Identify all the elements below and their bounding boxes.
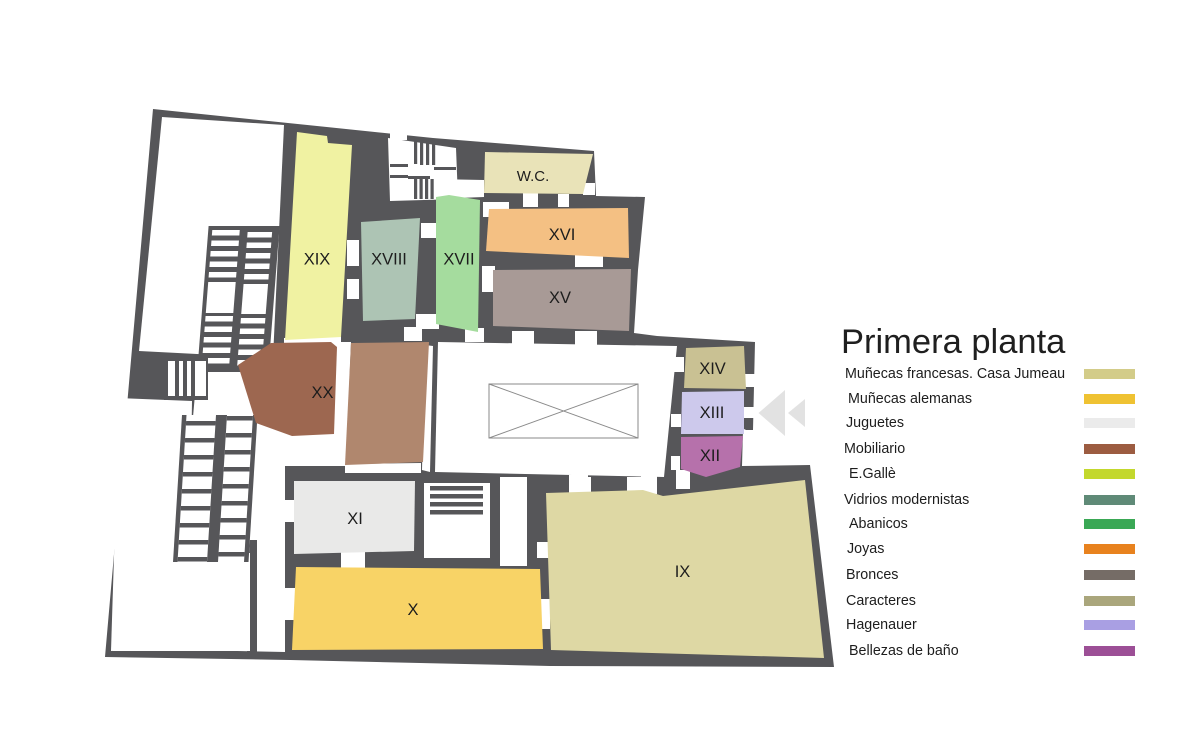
svg-text:XVII: XVII [443, 251, 474, 269]
svg-text:XIX: XIX [304, 251, 331, 269]
svg-text:Muñecas francesas. Casa Jumeau: Muñecas francesas. Casa Jumeau [845, 366, 1065, 382]
svg-text:Vidrios modernistas: Vidrios modernistas [844, 492, 969, 508]
svg-text:W.C.: W.C. [517, 168, 550, 185]
svg-text:XX: XX [311, 384, 333, 402]
svg-text:IX: IX [675, 563, 691, 581]
svg-text:XV: XV [549, 289, 571, 307]
svg-text:Mobiliario: Mobiliario [844, 441, 905, 457]
svg-text:E.Gallè: E.Gallè [849, 466, 896, 482]
svg-text:Juguetes: Juguetes [846, 415, 904, 431]
svg-text:XIII: XIII [700, 404, 725, 422]
svg-text:Hagenauer: Hagenauer [846, 617, 917, 633]
svg-text:Bellezas de baño: Bellezas de baño [849, 643, 959, 659]
svg-text:XI: XI [347, 510, 363, 528]
svg-text:Abanicos: Abanicos [849, 516, 908, 532]
svg-text:XVI: XVI [549, 226, 576, 244]
svg-text:Bronces: Bronces [846, 567, 898, 583]
svg-text:XII: XII [700, 447, 720, 465]
svg-text:XIV: XIV [699, 360, 726, 378]
svg-text:XVIII: XVIII [371, 251, 407, 269]
svg-text:Muñecas alemanas: Muñecas alemanas [848, 391, 972, 407]
svg-text:Primera planta: Primera planta [841, 323, 1066, 361]
svg-text:Caracteres: Caracteres [846, 593, 916, 609]
svg-text:Joyas: Joyas [847, 541, 884, 557]
svg-text:X: X [407, 601, 418, 619]
